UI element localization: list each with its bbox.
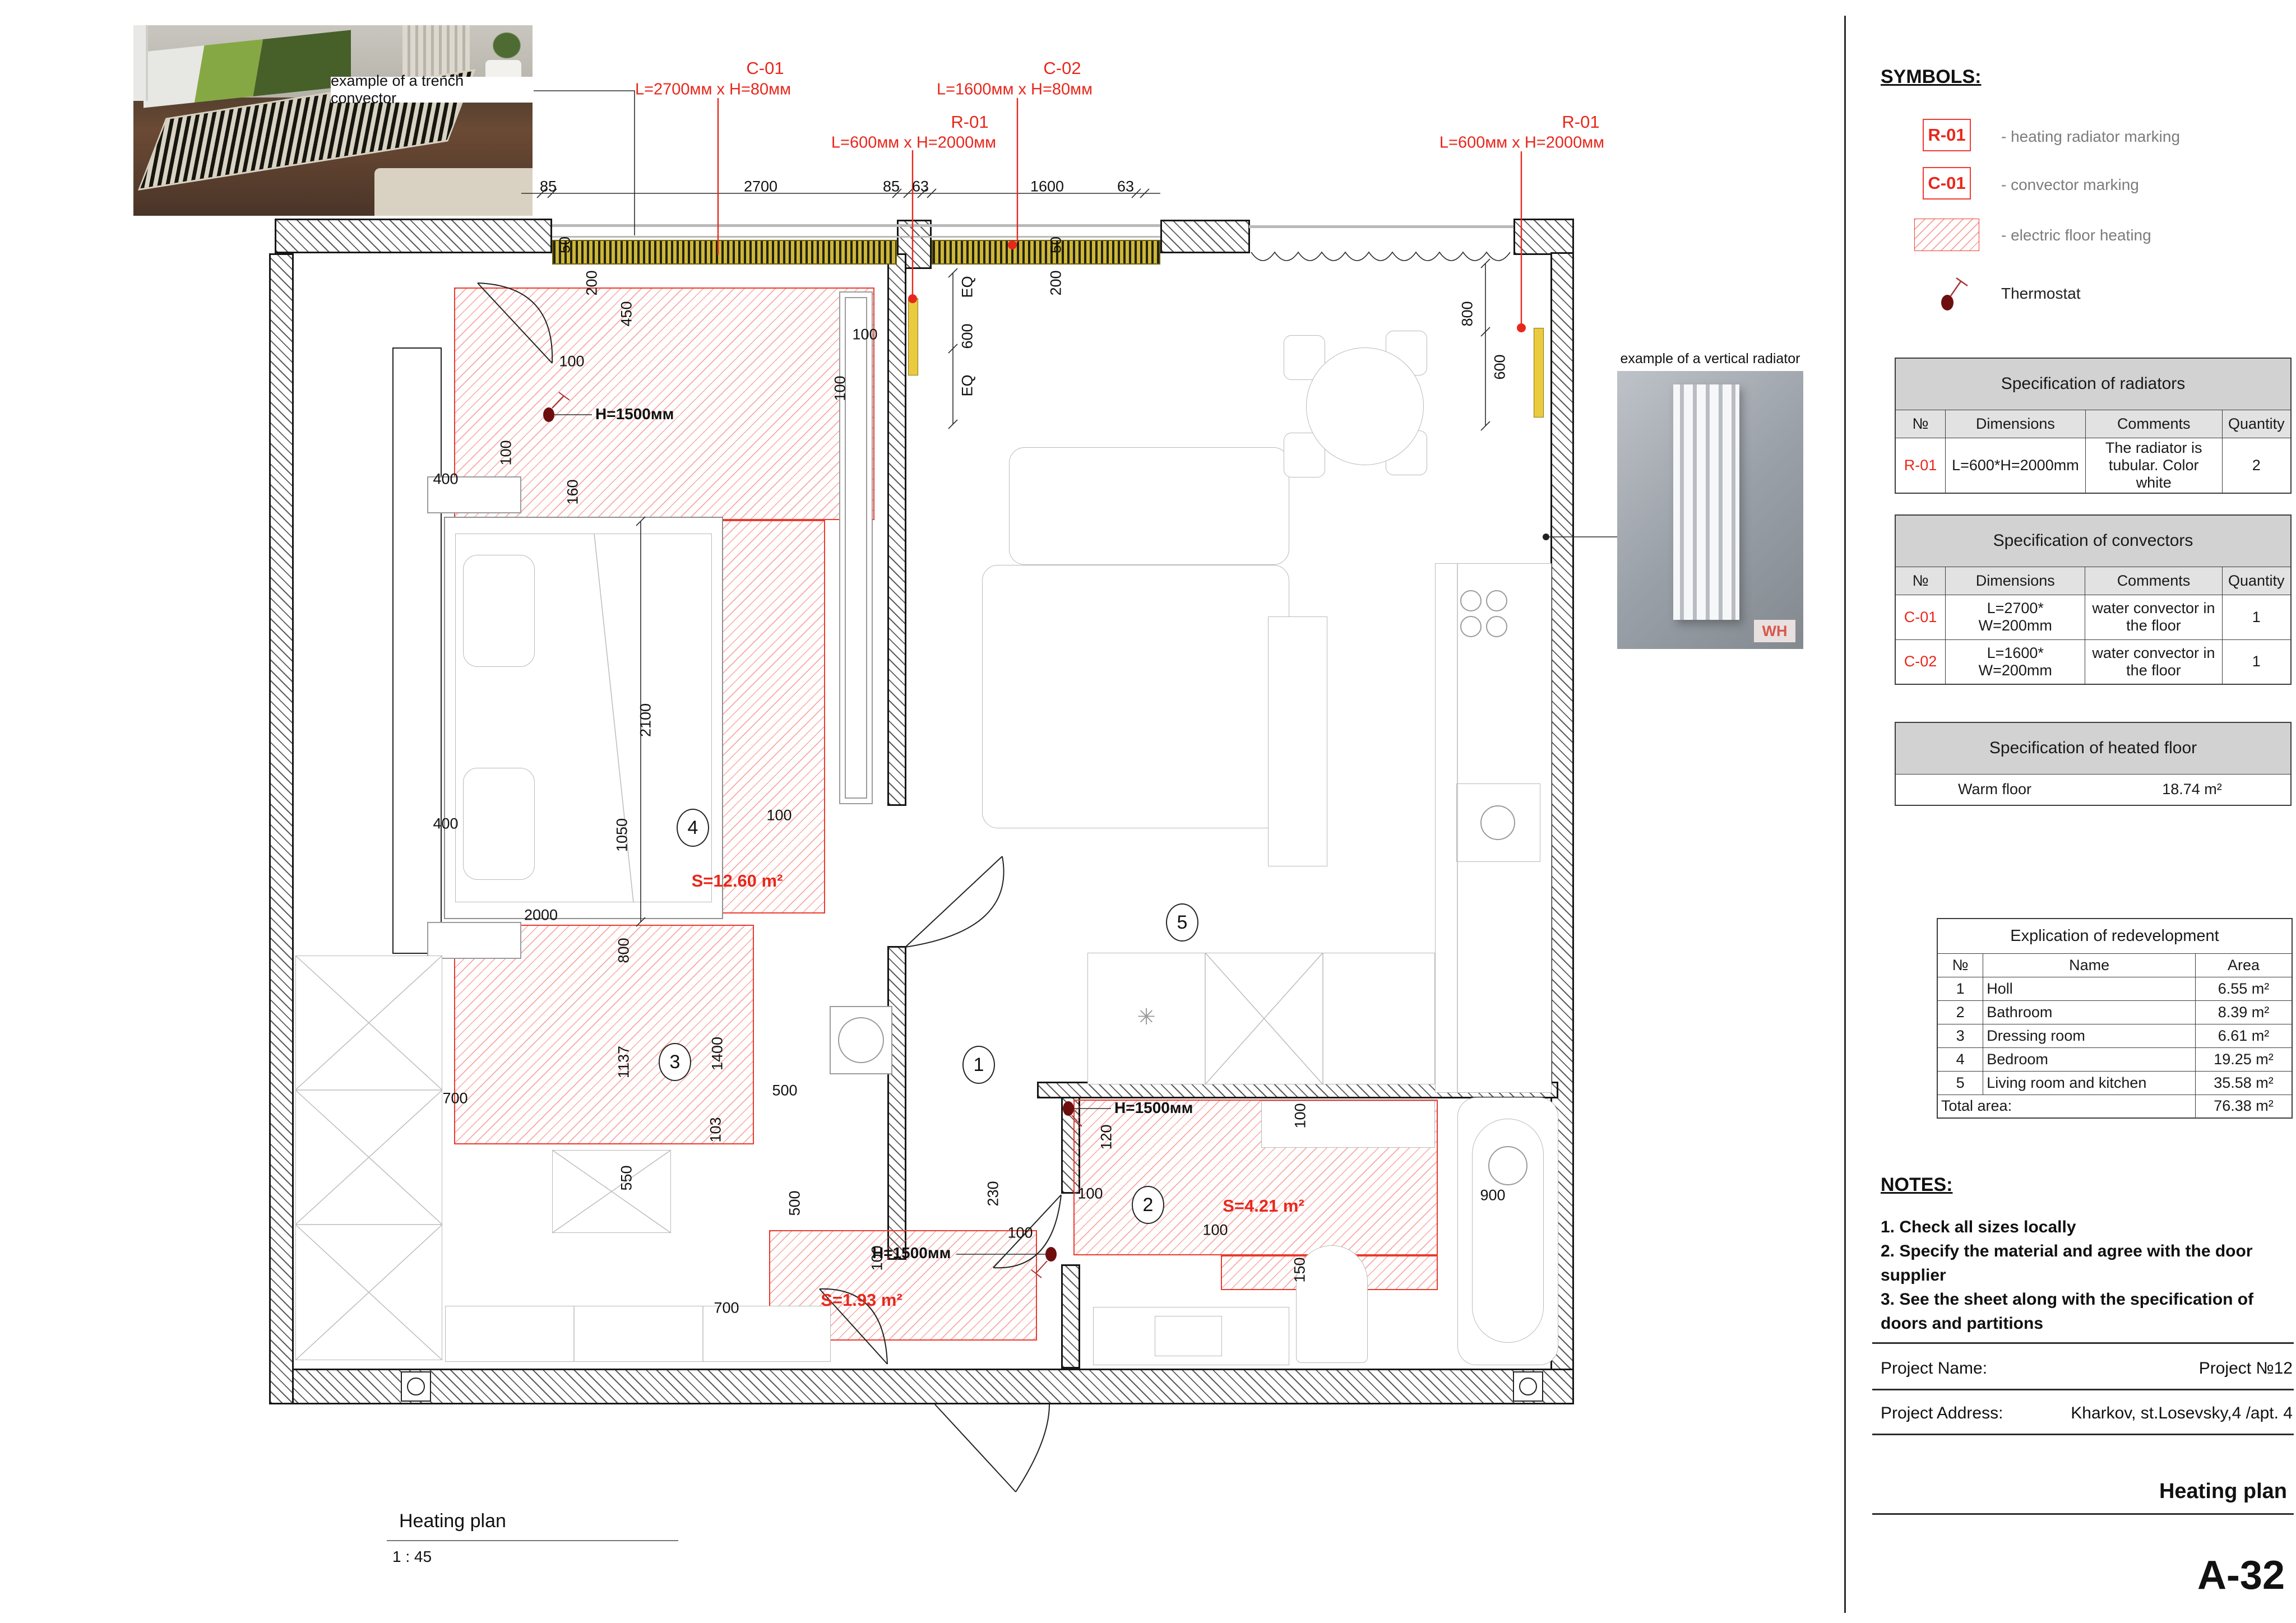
r01-right-code-label: R-01 — [1562, 112, 1599, 132]
plan-linework — [269, 168, 1805, 1524]
col-header: Quantity — [2222, 410, 2291, 438]
dim-85-b: 85 — [883, 178, 900, 196]
radiators-table: Specification of radiators № Dimensions … — [1895, 358, 2292, 494]
dim-63-b: 63 — [1117, 178, 1134, 196]
radiator-qty: 2 — [2222, 438, 2291, 493]
titleblock-rule-3 — [1872, 1434, 2294, 1435]
dim-450: 450 — [618, 301, 636, 326]
room-no: 3 — [1937, 1024, 1983, 1047]
legend-radiator-code: R-01 — [1923, 119, 1971, 151]
convectors-table-title: Specification of convectors — [1895, 515, 2291, 567]
heated-floor-table: Specification of heated floor Warm floor… — [1895, 722, 2292, 806]
convector-qty: 1 — [2222, 595, 2291, 639]
radiator-comment: The radiator is tubular. Color white — [2085, 438, 2222, 493]
dim-eq-a: EQ — [959, 276, 976, 298]
thermostat-height-bedroom: H=1500мм — [595, 405, 674, 423]
legend-thermostat-icon — [1928, 269, 1979, 319]
area-label-bedroom: S=12.60 m² — [692, 871, 783, 891]
dim-230: 230 — [985, 1181, 1002, 1206]
col-header: Dimensions — [1945, 410, 2085, 438]
dim-100-e: 100 — [766, 807, 791, 824]
room-name: Living room and kitchen — [1983, 1071, 2196, 1095]
legend-convector-code-text: C-01 — [1928, 173, 1965, 193]
room-no: 4 — [1937, 1047, 1983, 1071]
titleblock-rule-1 — [1872, 1342, 2294, 1344]
r01-right-size-label: L=600мм x H=2000мм — [1439, 134, 1604, 152]
convector-no: C-01 — [1895, 595, 1946, 639]
room-name: Dressing room — [1983, 1024, 2196, 1047]
room-area: 35.58 m² — [2195, 1071, 2292, 1095]
room-circle-living: 5 — [1166, 903, 1198, 942]
dim-100-d: 100 — [832, 375, 849, 401]
table-row: C-02 L=1600* W=200mm water convector in … — [1895, 639, 2291, 684]
room-area: 6.55 m² — [2195, 977, 2292, 1000]
dim-500-a: 500 — [772, 1082, 797, 1100]
room-area: 19.25 m² — [2195, 1047, 2292, 1071]
explication-table: Explication of redevelopment № Name Area… — [1937, 918, 2293, 1119]
table-total-row: Total area: 76.38 m² — [1937, 1095, 2292, 1118]
room-area: 6.61 m² — [2195, 1024, 2292, 1047]
legend-radiator-code-text: R-01 — [1928, 125, 1965, 145]
col-header: Comments — [2085, 410, 2222, 438]
sheet-number: A-32 — [1732, 1552, 2293, 1598]
asterisk-symbol: ✳ — [1137, 1004, 1156, 1030]
dim-800-a: 800 — [1459, 301, 1476, 326]
dim-100-g: 100 — [1007, 1225, 1033, 1242]
titleblock-rule-4 — [1872, 1513, 2294, 1515]
dim-100-c: 100 — [852, 326, 877, 344]
notes-list: 1. Check all sizes locally 2. Specify th… — [1881, 1215, 2295, 1336]
dim-1050: 1050 — [614, 818, 631, 852]
dim-600-b: 600 — [1492, 354, 1509, 379]
col-header: Name — [1983, 953, 2196, 977]
col-header: Quantity — [2222, 567, 2291, 595]
dim-700-a: 700 — [442, 1090, 467, 1107]
c02-size-label: L=1600мм x H=80мм — [937, 81, 1093, 99]
convector-qty: 1 — [2222, 639, 2291, 684]
heated-floor-value: 18.74 m² — [2094, 774, 2291, 805]
convector-comment: water convector in the floor — [2085, 639, 2222, 684]
dim-100-a: 100 — [559, 353, 584, 370]
room-number: 3 — [670, 1051, 681, 1073]
drawing-title-rule — [387, 1540, 678, 1541]
dim-103: 103 — [707, 1117, 725, 1142]
heated-floor-label: Warm floor — [1895, 774, 2094, 805]
r01-left-code-label: R-01 — [951, 112, 988, 132]
radiator-dim: L=600*H=2000mm — [1945, 438, 2085, 493]
dim-200-b: 200 — [1048, 270, 1065, 295]
dim-150: 150 — [1291, 1257, 1309, 1282]
c01-size-label: L=2700мм x H=80мм — [635, 81, 791, 99]
convector-no: C-02 — [1895, 639, 1946, 684]
dim-160: 160 — [564, 479, 582, 504]
dim-100-f: 100 — [869, 1245, 886, 1270]
legend-thermostat-label: Thermostat — [2001, 285, 2081, 303]
dim-550: 550 — [618, 1165, 636, 1190]
radiators-table-title: Specification of radiators — [1895, 358, 2291, 410]
dim-1137: 1137 — [615, 1046, 633, 1078]
area-label-bathroom: S=4.21 m² — [1223, 1196, 1304, 1216]
dim-2100: 2100 — [637, 703, 655, 737]
room-no: 2 — [1937, 1000, 1983, 1024]
dim-50-a: 50 — [557, 237, 574, 253]
dim-1600: 1600 — [1030, 178, 1064, 196]
legend-radiator-label: - heating radiator marking — [2001, 128, 2180, 146]
dim-eq-b: EQ — [959, 374, 976, 396]
note-3: 3. See the sheet along with the specific… — [1881, 1287, 2295, 1336]
c01-code-label: C-01 — [746, 58, 784, 78]
note-2: 2. Specify the material and agree with t… — [1881, 1239, 2295, 1287]
room-name: Holl — [1983, 977, 2196, 1000]
dim-900: 900 — [1480, 1187, 1505, 1204]
col-header: № — [1937, 953, 1983, 977]
table-row: R-01 L=600*H=2000mm The radiator is tubu… — [1895, 438, 2291, 493]
trench-photo-caption-text: example of a trench convector — [331, 72, 533, 107]
room-number: 4 — [688, 817, 698, 839]
dim-400-a: 400 — [433, 471, 458, 488]
symbols-title: SYMBOLS: — [1881, 66, 1981, 88]
table-row: C-01 L=2700* W=200mm water convector in … — [1895, 595, 2291, 639]
drawing-scale: 1 : 45 — [392, 1548, 432, 1566]
table-row: Warm floor 18.74 m² — [1895, 774, 2291, 805]
total-area-value: 76.38 m² — [2195, 1095, 2292, 1118]
dim-800-b: 800 — [615, 938, 633, 963]
room-number: 1 — [974, 1054, 984, 1076]
drawing-title: Heating plan — [399, 1510, 506, 1532]
dim-120: 120 — [1098, 1124, 1115, 1149]
room-number: 2 — [1143, 1194, 1154, 1216]
c02-code-label: C-02 — [1043, 58, 1081, 78]
dim-400-b: 400 — [433, 815, 458, 833]
dim-1400: 1400 — [709, 1037, 726, 1070]
table-row: 1 Holl 6.55 m² — [1937, 977, 2292, 1000]
room-no: 1 — [1937, 977, 1983, 1000]
convector-comment: water convector in the floor — [2085, 595, 2222, 639]
room-name: Bathroom — [1983, 1000, 2196, 1024]
dim-100-h: 100 — [1077, 1185, 1103, 1203]
dim-50-b: 50 — [1048, 237, 1065, 253]
r01-left-size-label: L=600мм x H=2000мм — [831, 134, 996, 152]
col-header: № — [1895, 410, 1945, 438]
dim-100-j: 100 — [1202, 1222, 1228, 1239]
dim-2700: 2700 — [744, 178, 777, 196]
room-area: 8.39 m² — [2195, 1000, 2292, 1024]
dim-500-b: 500 — [786, 1190, 804, 1216]
legend-floor-label: - electric floor heating — [2001, 226, 2151, 244]
convector-dim: L=2700* W=200mm — [1946, 595, 2085, 639]
radiator-no: R-01 — [1895, 438, 1945, 493]
sheet-title: Heating plan — [1732, 1480, 2293, 1504]
dim-2000: 2000 — [524, 907, 558, 924]
room-circle-bedroom: 4 — [677, 809, 709, 847]
table-row: 3 Dressing room 6.61 m² — [1937, 1024, 2292, 1047]
room-circle-dressing: 3 — [659, 1043, 691, 1081]
room-circle-hall: 1 — [962, 1046, 995, 1084]
room-number: 5 — [1177, 912, 1188, 934]
photo-window-frame — [133, 25, 148, 101]
dim-700-b: 700 — [714, 1300, 739, 1317]
room-name: Bedroom — [1983, 1047, 2196, 1071]
legend-convector-code: C-01 — [1923, 167, 1971, 200]
legend-convector-label: - convector marking — [2001, 176, 2139, 194]
col-header: Area — [2195, 953, 2292, 977]
notes-title: NOTES: — [1881, 1174, 1952, 1196]
heated-floor-table-title: Specification of heated floor — [1895, 722, 2291, 774]
trench-photo-caption: example of a trench convector — [331, 77, 533, 103]
total-area-label: Total area: — [1937, 1095, 2195, 1118]
project-address-value: Kharkov, st.Losevsky,4 /apt. 4 — [1732, 1404, 2293, 1423]
note-1: 1. Check all sizes locally — [1881, 1215, 2295, 1239]
convector-dim: L=1600* W=200mm — [1946, 639, 2085, 684]
col-header: Comments — [2085, 567, 2222, 595]
dim-200-a: 200 — [584, 270, 601, 295]
dim-600-a: 600 — [959, 323, 976, 349]
dim-100-i: 100 — [1292, 1103, 1309, 1128]
area-label-hall: S=1.93 m² — [821, 1290, 902, 1310]
photo-plant — [490, 30, 524, 61]
col-header: № — [1895, 567, 1946, 595]
titleblock-rule-2 — [1872, 1389, 2294, 1390]
table-row: 5 Living room and kitchen 35.58 m² — [1937, 1071, 2292, 1095]
table-row: 2 Bathroom 8.39 m² — [1937, 1000, 2292, 1024]
dim-85-a: 85 — [540, 178, 557, 196]
convectors-table: Specification of convectors № Dimensions… — [1895, 514, 2292, 685]
room-no: 5 — [1937, 1071, 1983, 1095]
dim-63-a: 63 — [912, 178, 929, 196]
project-name-value: Project №12 — [1732, 1359, 2293, 1378]
room-circle-bathroom: 2 — [1132, 1186, 1164, 1224]
col-header: Dimensions — [1946, 567, 2085, 595]
legend-floor-swatch — [1914, 219, 1979, 251]
table-row: 4 Bedroom 19.25 m² — [1937, 1047, 2292, 1071]
thermostat-height-bathroom: H=1500мм — [1114, 1099, 1193, 1117]
explication-title: Explication of redevelopment — [1937, 919, 2292, 953]
dim-100-b: 100 — [498, 440, 515, 465]
